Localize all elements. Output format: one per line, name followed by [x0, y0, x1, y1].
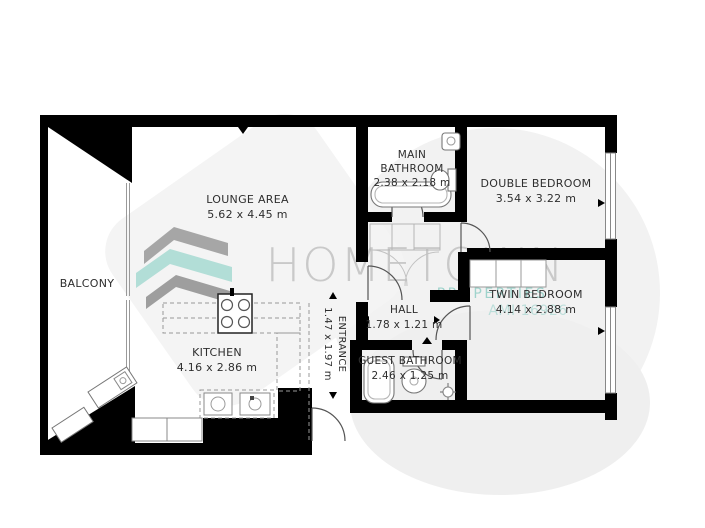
main-bathroom-name-1: MAIN — [364, 148, 460, 162]
lounge-dims: 5.62 x 4.45 m — [160, 207, 335, 222]
lounge-name: LOUNGE AREA — [160, 192, 335, 207]
entrance-dims: 1.47 x 1.97 m — [321, 288, 335, 400]
double-bedroom-dims: 3.54 x 3.22 m — [461, 191, 611, 206]
window-twin-bedroom — [606, 307, 616, 393]
hall-closet — [370, 224, 440, 286]
twin-bedroom-dims: 4.14 x 2.88 m — [461, 302, 611, 317]
entrance-name: ENTRANCE — [335, 288, 349, 400]
twin-wardrobe — [470, 260, 546, 287]
double-bedroom-label: DOUBLE BEDROOM 3.54 x 3.22 m — [461, 176, 611, 207]
balcony-name: BALCONY — [44, 276, 130, 291]
stove — [218, 294, 252, 333]
main-bathroom-dims: 2.38 x 2.18 m — [364, 176, 460, 190]
kitchen-name: KITCHEN — [148, 345, 286, 360]
main-bathroom-name-2: BATHROOM — [364, 162, 460, 176]
balcony-label: BALCONY — [44, 276, 130, 291]
fixtures-layer — [0, 0, 705, 528]
twin-bedroom-name: TWIN BEDROOM — [461, 287, 611, 302]
twin-bedroom-label: TWIN BEDROOM 4.14 x 2.88 m — [461, 287, 611, 318]
kitchen-label: KITCHEN 4.16 x 2.86 m — [148, 345, 286, 376]
hall-name: HALL — [360, 303, 448, 318]
main-bathroom-label: MAIN BATHROOM 2.38 x 2.18 m — [364, 148, 460, 191]
double-bedroom-name: DOUBLE BEDROOM — [461, 176, 611, 191]
lounge-label: LOUNGE AREA 5.62 x 4.45 m — [160, 192, 335, 223]
floorplan-canvas: HOMETOWN PROPERTIES AMI 16926 — [0, 0, 705, 528]
entrance-label: ENTRANCE 1.47 x 1.97 m — [320, 288, 348, 400]
guest-bathroom-label: GUEST BATHROOM 2.46 x 1.25 m — [352, 354, 468, 383]
guest-bathroom-dims: 2.46 x 1.25 m — [352, 369, 468, 384]
hall-dims: 1.78 x 1.21 m — [360, 318, 448, 333]
balcony-units — [52, 367, 137, 442]
kitchen-appliances — [132, 393, 270, 441]
hall-label: HALL 1.78 x 1.21 m — [360, 303, 448, 332]
guest-bathroom-name: GUEST BATHROOM — [352, 354, 468, 369]
pedestal-sink — [443, 387, 453, 397]
kitchen-dims: 4.16 x 2.86 m — [148, 360, 286, 375]
